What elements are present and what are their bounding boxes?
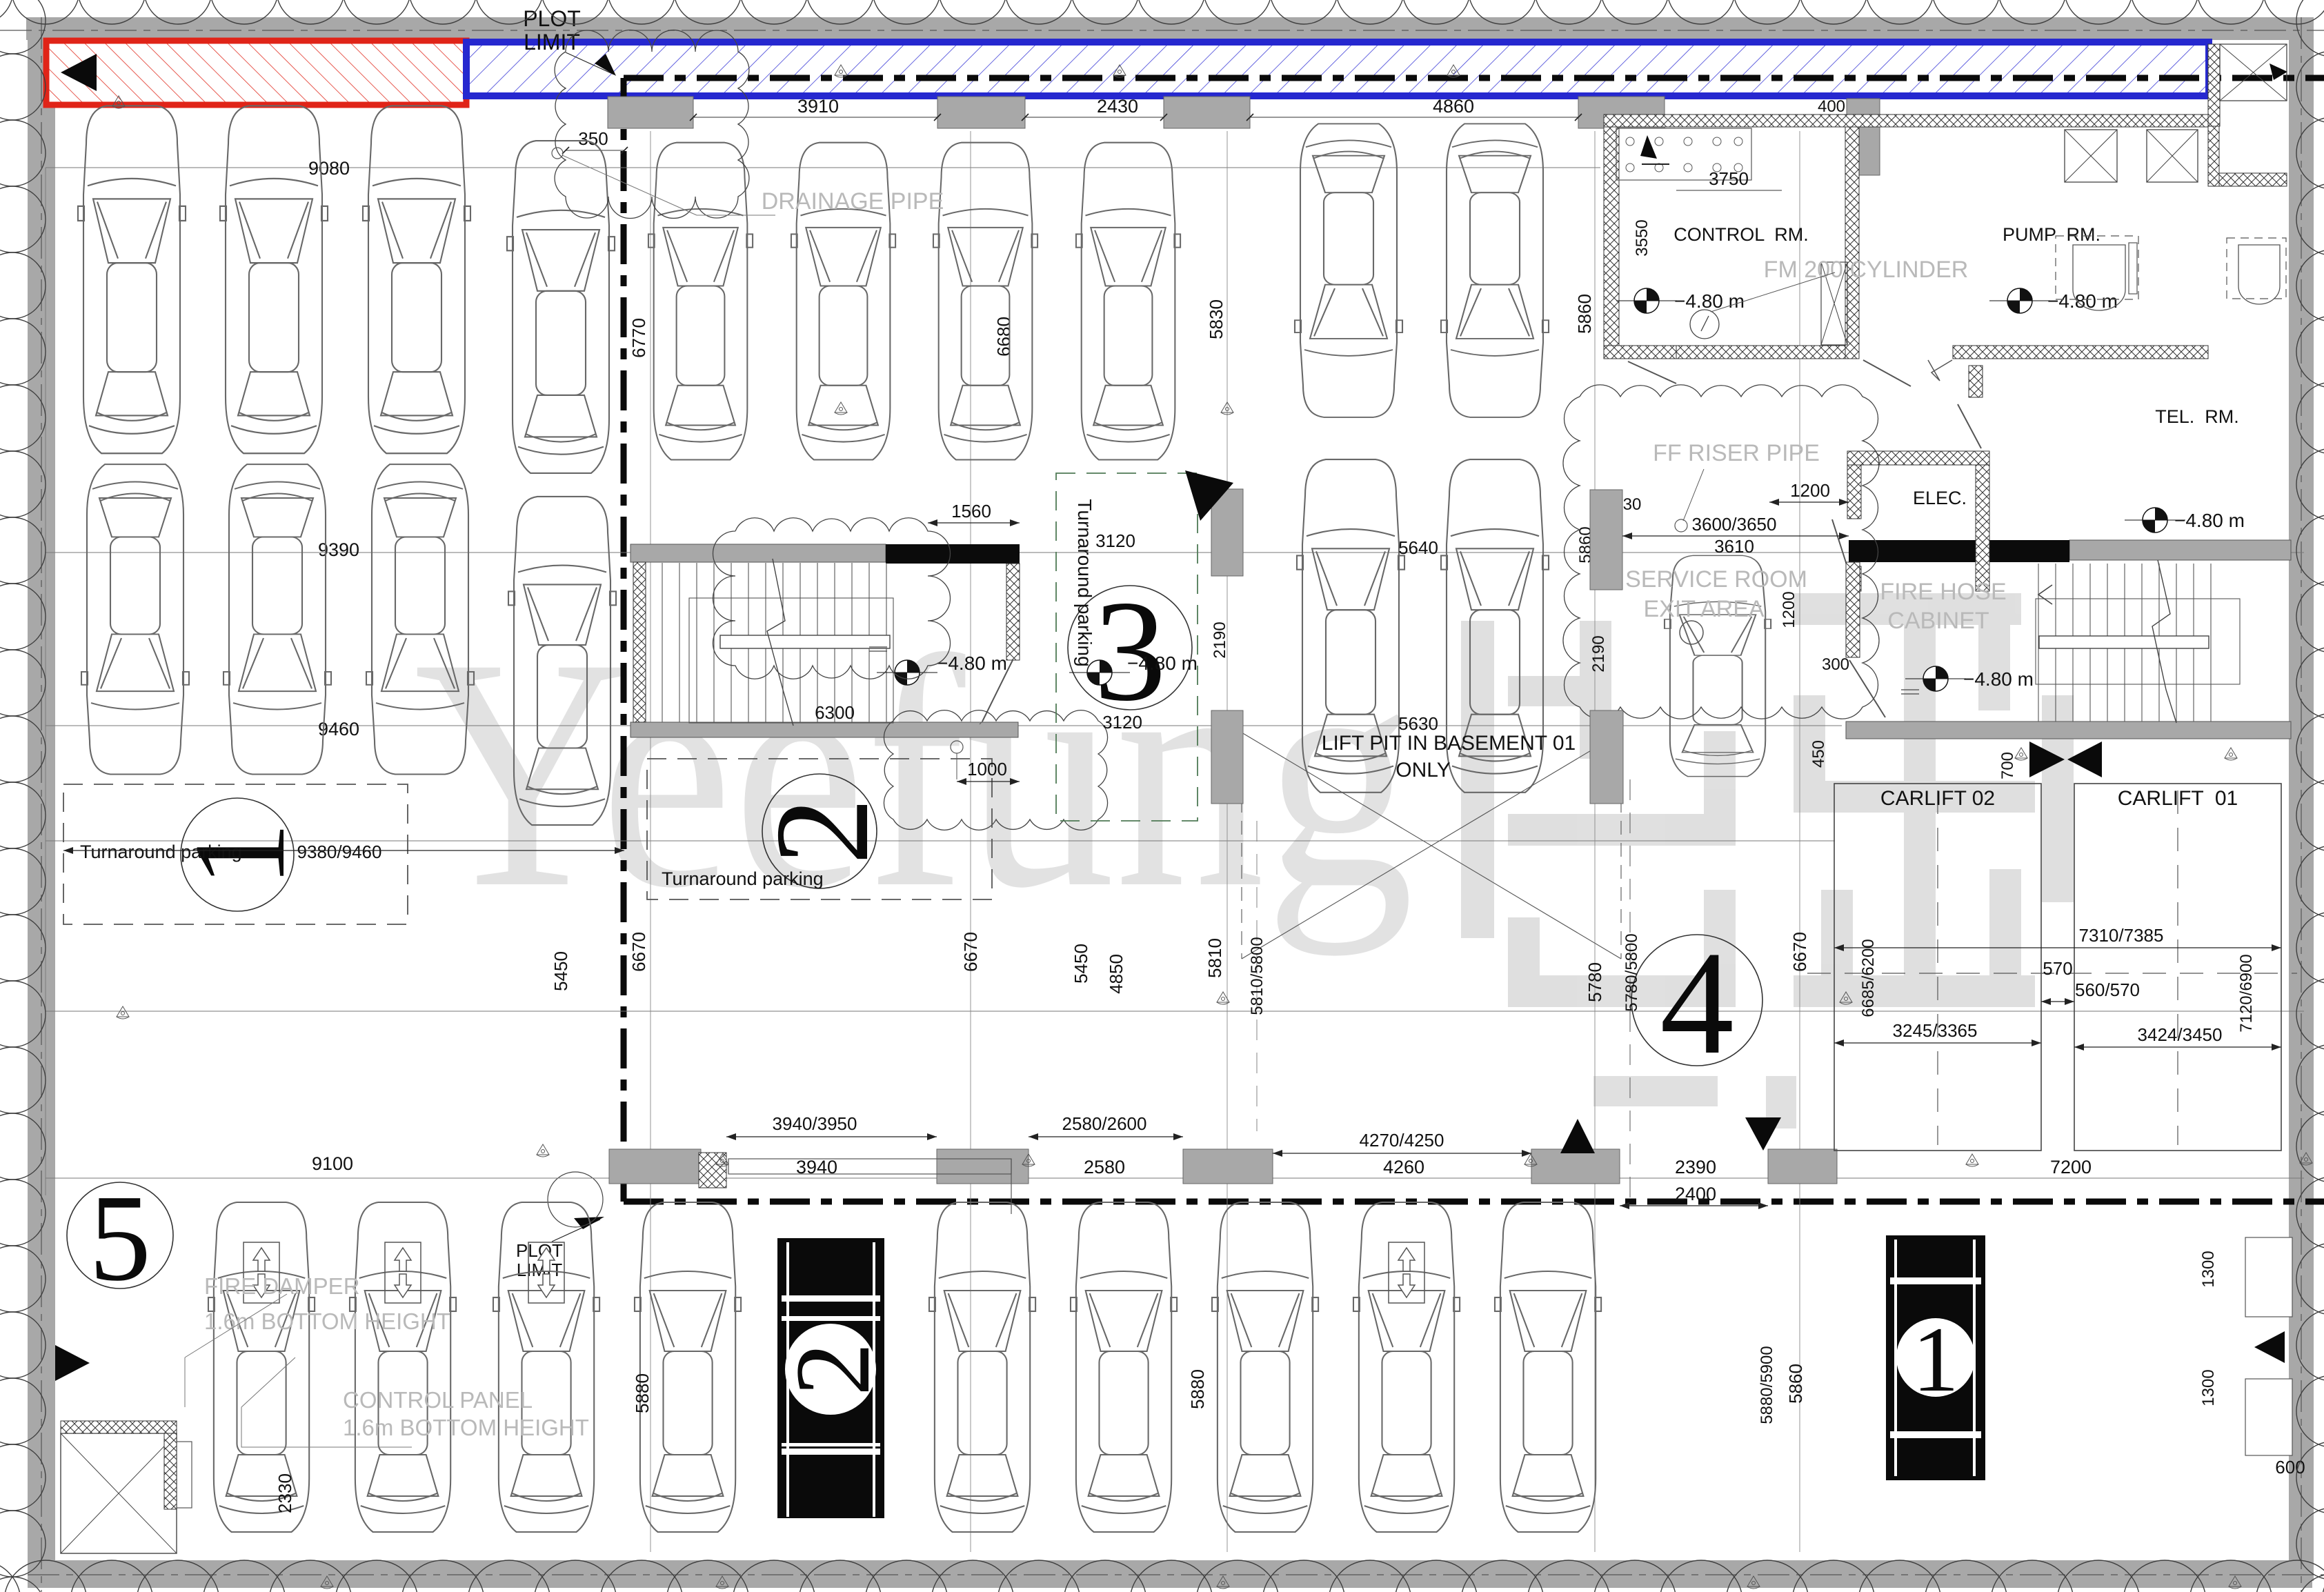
svg-text:2430: 2430 [1097, 96, 1138, 117]
svg-text:DRAINAGE PIPE: DRAINAGE PIPE [762, 188, 944, 215]
svg-text:5780/5800: 5780/5800 [1622, 933, 1641, 1011]
svg-text:1300: 1300 [2199, 1369, 2218, 1406]
svg-text:FF RISER PIPE: FF RISER PIPE [1653, 440, 1820, 466]
svg-text:−4.80 m: −4.80 m [937, 653, 1007, 674]
svg-text:5860: 5860 [1785, 1364, 1806, 1404]
svg-text:CONTROL RM.: CONTROL RM. [1674, 224, 1809, 245]
svg-text:4270/4250: 4270/4250 [1360, 1130, 1444, 1151]
svg-text:3245/3365: 3245/3365 [1893, 1020, 1978, 1041]
svg-text:2: 2 [748, 797, 897, 865]
svg-text:3: 3 [1094, 571, 1166, 731]
svg-text:1200: 1200 [1790, 480, 1830, 501]
svg-text:−4.80 m: −4.80 m [2047, 290, 2118, 312]
svg-text:6670: 6670 [1789, 932, 1810, 972]
svg-text:ELEC.: ELEC. [1913, 488, 1967, 508]
svg-text:CONTROL PANEL: CONTROL PANEL [343, 1387, 533, 1413]
svg-text:4850: 4850 [1106, 954, 1126, 994]
svg-text:6670: 6670 [628, 932, 649, 972]
svg-text:3120: 3120 [1095, 530, 1135, 551]
svg-text:7310/7385: 7310/7385 [2079, 925, 2164, 946]
svg-text:560/570: 560/570 [2075, 979, 2140, 1000]
svg-text:1200: 1200 [1780, 591, 1798, 628]
svg-text:5: 5 [89, 1169, 151, 1306]
svg-text:−4.80 m: −4.80 m [1127, 653, 1198, 674]
svg-text:Yeefung: Yeefung [414, 589, 1414, 957]
svg-text:LIFT PIT IN BASEMENT 01: LIFT PIT IN BASEMENT 01 [1322, 732, 1576, 755]
svg-text:FIRE DAMPER: FIRE DAMPER [204, 1273, 360, 1299]
svg-text:6685/6200: 6685/6200 [1859, 939, 1878, 1017]
svg-text:1: 1 [1912, 1309, 1959, 1411]
svg-text:1560: 1560 [951, 501, 991, 521]
svg-text:5880/5900: 5880/5900 [1758, 1346, 1776, 1424]
svg-text:2390: 2390 [1675, 1157, 1716, 1177]
svg-text:1.6m BOTTOM HEIGHT: 1.6m BOTTOM HEIGHT [343, 1415, 589, 1440]
svg-text:Turnaround parking: Turnaround parking [662, 868, 824, 889]
svg-text:−4.80 m: −4.80 m [2174, 510, 2245, 531]
svg-text:9100: 9100 [312, 1153, 353, 1174]
svg-text:9080: 9080 [308, 158, 350, 179]
svg-text:7120/6900: 7120/6900 [2237, 954, 2256, 1032]
svg-text:CABINET: CABINET [1887, 608, 1989, 634]
svg-text:1000: 1000 [967, 759, 1007, 779]
svg-text:4860: 4860 [1433, 96, 1474, 117]
svg-text:3550: 3550 [1633, 219, 1651, 256]
svg-text:5450: 5450 [550, 951, 571, 991]
svg-text:2190: 2190 [1211, 621, 1229, 658]
svg-text:−4.80 m: −4.80 m [1674, 290, 1745, 312]
svg-text:2190: 2190 [1589, 635, 1608, 672]
svg-text:3750: 3750 [1709, 168, 1749, 189]
svg-text:PUMP RM.: PUMP RM. [2003, 224, 2100, 245]
svg-text:3610: 3610 [1714, 536, 1754, 557]
svg-text:700: 700 [1998, 752, 2017, 779]
svg-text:Turnaround parking: Turnaround parking [1074, 499, 1095, 666]
svg-text:1300: 1300 [2199, 1251, 2218, 1287]
svg-text:3120: 3120 [1102, 712, 1142, 733]
svg-text:FM 200 CYLINDER: FM 200 CYLINDER [1764, 257, 1969, 283]
svg-text:9380/9460: 9380/9460 [297, 842, 382, 862]
svg-text:4260: 4260 [1383, 1157, 1424, 1177]
svg-text:5830: 5830 [1206, 299, 1226, 339]
svg-text:6670: 6670 [960, 932, 981, 972]
svg-text:7200: 7200 [2050, 1157, 2092, 1177]
svg-text:5880: 5880 [1187, 1369, 1208, 1409]
svg-text:350: 350 [578, 128, 608, 149]
svg-text:5880: 5880 [632, 1373, 653, 1413]
svg-text:570: 570 [2043, 958, 2072, 979]
svg-text:6770: 6770 [628, 318, 649, 358]
svg-text:3940/3950: 3940/3950 [773, 1113, 857, 1134]
svg-text:5810: 5810 [1204, 938, 1225, 978]
svg-text:3600/3650: 3600/3650 [1692, 514, 1777, 535]
svg-text:ONLY: ONLY [1396, 759, 1450, 782]
svg-text:5860: 5860 [1574, 294, 1595, 334]
svg-text:LIMIT: LIMIT [517, 1260, 563, 1280]
svg-text:5810/5800: 5810/5800 [1248, 937, 1267, 1015]
svg-text:2: 2 [773, 1342, 892, 1396]
svg-text:CARLIFT 02: CARLIFT 02 [1880, 787, 1995, 810]
svg-text:2580/2600: 2580/2600 [1062, 1113, 1147, 1134]
svg-text:6300: 6300 [815, 702, 855, 723]
svg-text:3910: 3910 [797, 96, 839, 117]
svg-text:5630: 5630 [1398, 713, 1438, 734]
svg-text:5780: 5780 [1585, 962, 1605, 1002]
svg-text:6680: 6680 [993, 317, 1014, 357]
svg-text:400: 400 [1818, 97, 1845, 116]
svg-text:5640: 5640 [1398, 537, 1438, 558]
svg-text:Turnaround parking: Turnaround parking [80, 842, 242, 862]
svg-text:1.6m BOTTOM HEIGHT: 1.6m BOTTOM HEIGHT [204, 1309, 450, 1334]
svg-text:PLOT: PLOT [523, 6, 581, 31]
svg-text:30: 30 [1623, 495, 1642, 514]
svg-text:2400: 2400 [1675, 1184, 1716, 1204]
svg-text:−4.80 m: −4.80 m [1963, 668, 2034, 690]
svg-text:4: 4 [1660, 920, 1734, 1085]
svg-text:2330: 2330 [275, 1473, 295, 1513]
svg-text:450: 450 [1809, 740, 1828, 768]
svg-text:SERVICE ROOM: SERVICE ROOM [1625, 566, 1807, 593]
svg-text:TEL. RM.: TEL. RM. [2155, 406, 2239, 427]
svg-text:2580: 2580 [1084, 1157, 1125, 1177]
svg-text:CARLIFT 01: CARLIFT 01 [2118, 787, 2238, 810]
svg-text:FIRE HOSE: FIRE HOSE [1880, 579, 2006, 605]
svg-text:EXIT AREA: EXIT AREA [1643, 596, 1764, 622]
svg-text:300: 300 [1822, 655, 1849, 674]
svg-text:5450: 5450 [1071, 944, 1091, 984]
svg-text:9390: 9390 [318, 539, 359, 560]
svg-text:LIMIT: LIMIT [524, 30, 580, 54]
svg-text:3424/3450: 3424/3450 [2138, 1024, 2223, 1045]
